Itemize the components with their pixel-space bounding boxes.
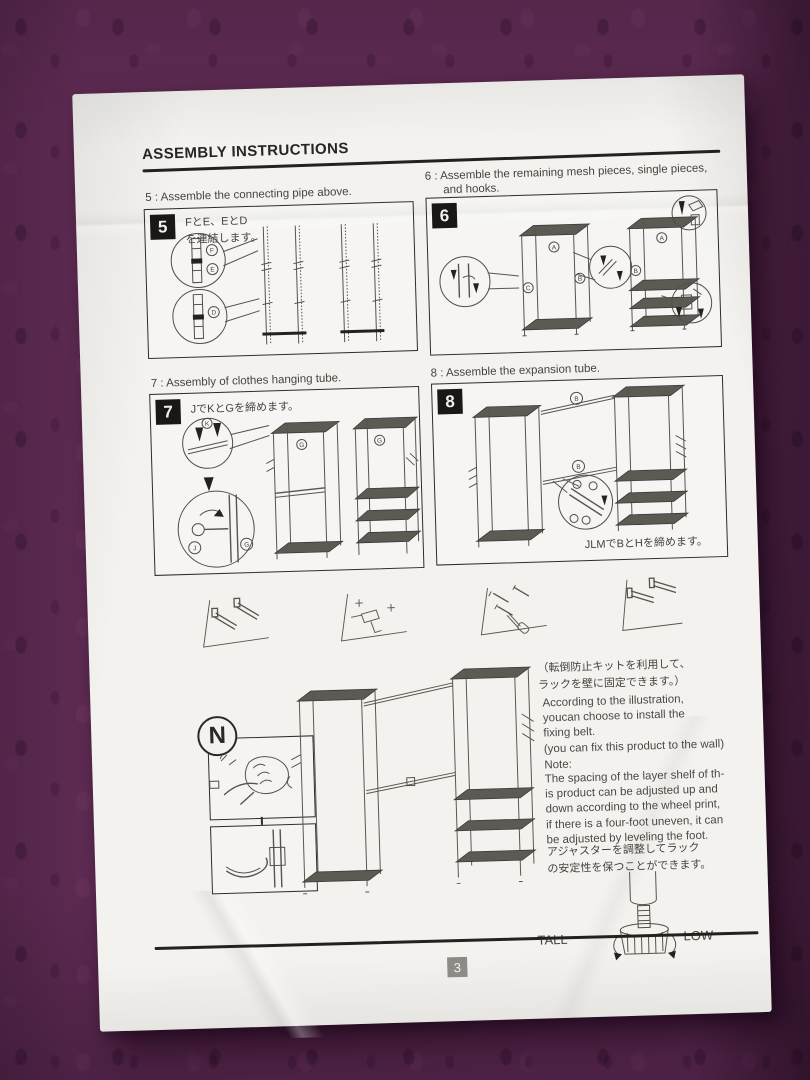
page-number: 3 bbox=[447, 957, 468, 978]
hook-callout-left bbox=[439, 255, 519, 307]
step5-box: 5 FとE、EとD を連結します。 bbox=[144, 201, 418, 359]
expansion-tube-mid: B bbox=[542, 459, 617, 484]
pipe-callout-lower: D bbox=[172, 288, 261, 345]
adjustable-foot-drawing bbox=[568, 867, 721, 963]
wall-belt-attached-icon bbox=[599, 570, 687, 645]
rack-left: G bbox=[265, 421, 343, 559]
step7-diagram: K J G G bbox=[150, 387, 423, 575]
instruction-sheet-page: ASSEMBLY INSTRUCTIONS 5 : Assemble the c… bbox=[72, 74, 772, 1032]
joint-callout bbox=[553, 474, 614, 530]
rack-left bbox=[467, 405, 545, 547]
svg-text:E: E bbox=[210, 267, 215, 274]
screw-callout-big: J G bbox=[177, 490, 255, 568]
step8-jp-note: JLMでBとHを締めます。 bbox=[585, 534, 708, 552]
right-tower bbox=[450, 667, 538, 883]
down-arrow bbox=[204, 477, 214, 491]
svg-text:K: K bbox=[205, 421, 210, 428]
svg-text:G: G bbox=[377, 438, 382, 445]
note-body: The spacing of the layer shelf of th- is… bbox=[545, 767, 727, 848]
assembled-rack-drawing bbox=[261, 658, 560, 915]
svg-text:A: A bbox=[552, 244, 557, 251]
step7-box: 7 JでKとGを締めます。 K J G bbox=[149, 386, 424, 576]
wall-fix-en-note: According to the illustration, youcan ch… bbox=[542, 691, 724, 757]
svg-text:B: B bbox=[578, 276, 583, 283]
rack-right: A B bbox=[627, 217, 700, 331]
rack-right bbox=[612, 385, 688, 531]
svg-text:B: B bbox=[576, 464, 581, 471]
photo-of-instruction-sheet: ASSEMBLY INSTRUCTIONS 5 : Assemble the c… bbox=[0, 0, 810, 1080]
svg-text:J: J bbox=[193, 545, 196, 552]
svg-text:C: C bbox=[526, 285, 531, 292]
step8-diagram: B B JLMでBとHを締めます。 bbox=[432, 376, 727, 565]
n-detail-connector bbox=[261, 817, 263, 825]
connecting-pipes-diagram bbox=[259, 223, 384, 345]
rack-right: G bbox=[353, 417, 421, 555]
tube-callout-top: K bbox=[182, 416, 270, 469]
step5-diagram: F E D bbox=[145, 202, 417, 358]
step5-caption: 5 : Assemble the connecting pipe above. bbox=[145, 185, 352, 206]
step6-caption-line1: 6 : Assemble the remaining mesh pieces, … bbox=[425, 161, 708, 184]
connecting-tubes bbox=[363, 683, 456, 794]
page-title: ASSEMBLY INSTRUCTIONS bbox=[142, 140, 349, 163]
step8-box: 8 bbox=[431, 375, 728, 566]
svg-text:G: G bbox=[244, 542, 249, 549]
svg-text:F: F bbox=[210, 248, 214, 255]
svg-text:B: B bbox=[574, 396, 579, 403]
left-tower bbox=[285, 689, 383, 894]
svg-text:A: A bbox=[660, 235, 665, 242]
wall-fix-jp-note: （転倒防止キットを利用して、 ラックを壁に固定できます。） bbox=[537, 656, 691, 695]
rack-left: A C B bbox=[519, 224, 592, 336]
screws-screwdriver-icon bbox=[465, 576, 553, 651]
step6-box: 6 A C B bbox=[425, 189, 722, 356]
svg-text:B: B bbox=[633, 268, 638, 275]
wall-belt-position-icon bbox=[187, 588, 275, 663]
svg-text:D: D bbox=[211, 309, 216, 316]
drill-holes-icon bbox=[325, 582, 413, 657]
expansion-tube-top: B bbox=[540, 391, 615, 414]
svg-text:G: G bbox=[299, 442, 304, 449]
pipe-callout-upper: F E bbox=[170, 232, 259, 289]
mesh-callout-top-right bbox=[672, 195, 707, 230]
step6-diagram: A C B A B bbox=[426, 190, 721, 355]
